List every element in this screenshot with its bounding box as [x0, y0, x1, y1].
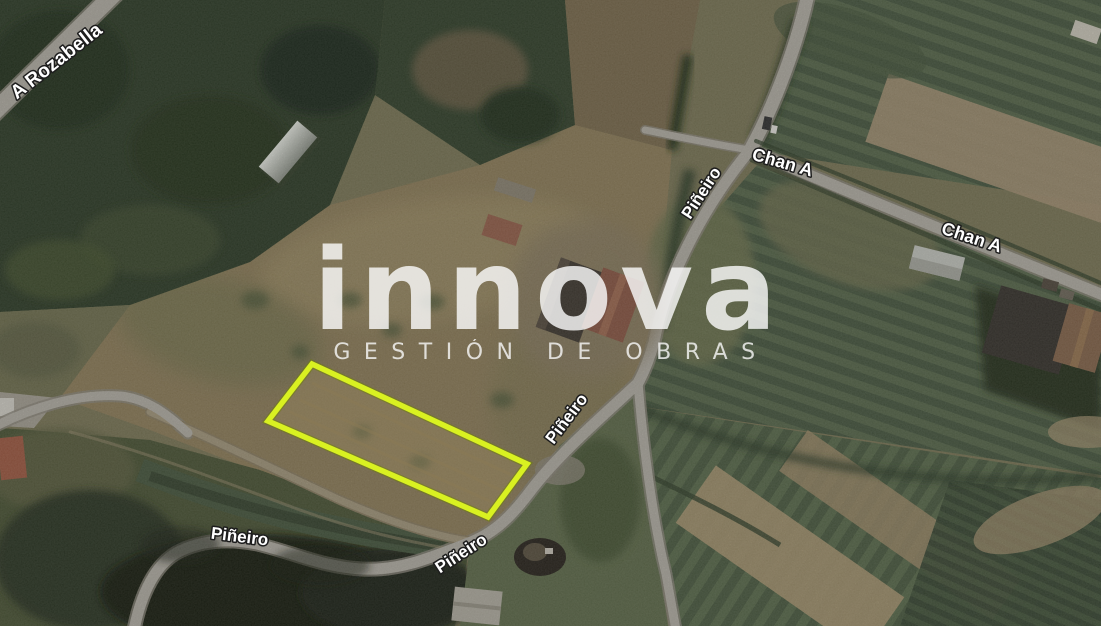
satellite-image: A Rozabella Piñeiro Chan A Chan A Piñeir… — [0, 0, 1101, 626]
watermark-tagline: GESTIÓN DE OBRAS — [333, 339, 768, 365]
watermark-wordmark: innova — [313, 226, 784, 356]
map-canvas[interactable]: A Rozabella Piñeiro Chan A Chan A Piñeir… — [0, 0, 1101, 626]
watermark: innova GESTIÓN DE OBRAS — [313, 226, 784, 365]
